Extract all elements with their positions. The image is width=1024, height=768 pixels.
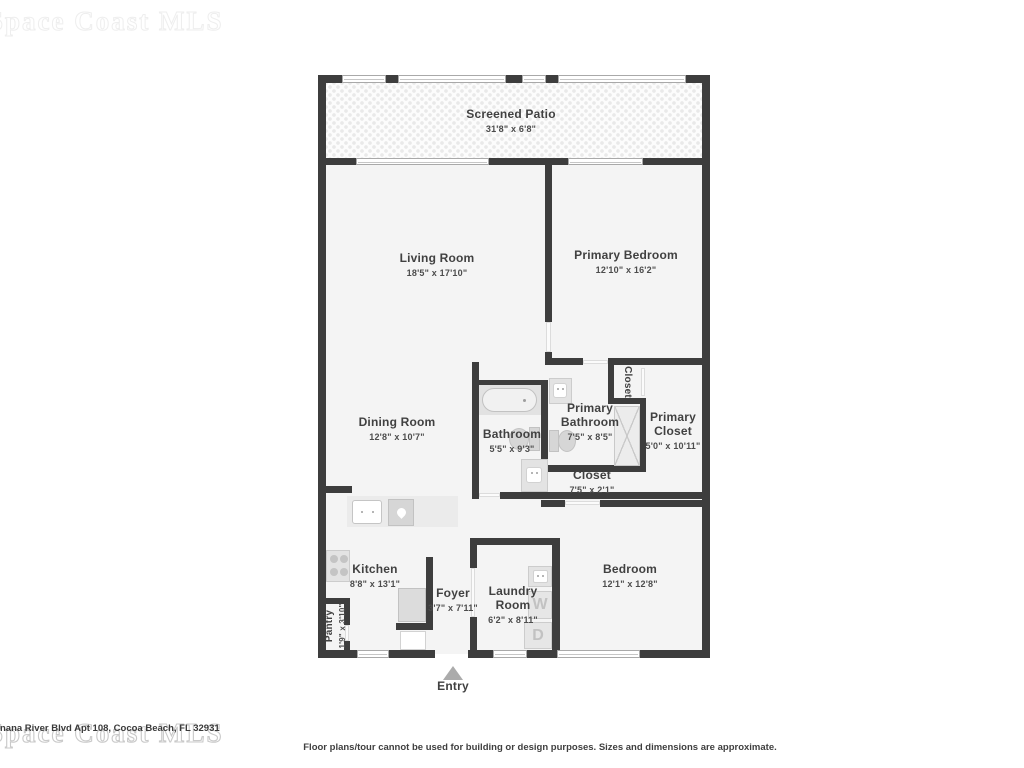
window (398, 75, 506, 83)
door-primary-bath (583, 360, 608, 364)
wall-laundry (470, 538, 560, 545)
wall-bedroom (541, 500, 565, 507)
wall-foyer (396, 623, 433, 630)
faucet-dot (557, 388, 559, 390)
wall-primary-suite (545, 358, 583, 365)
wall-top (546, 75, 558, 83)
door-bedroom (565, 501, 600, 505)
faucet-dot (372, 511, 374, 513)
wall-left (318, 75, 326, 658)
bathtub-drain (523, 399, 526, 402)
window (558, 75, 686, 83)
label-dining-room: Dining Room 12'8" x 10'7" (359, 416, 436, 442)
door-closet (641, 368, 645, 396)
dryer-letter: D (532, 627, 544, 645)
burner (330, 555, 338, 563)
label-bathroom: Bathroom 5'5" x 9'3" (483, 428, 541, 454)
sink-icon (526, 467, 542, 483)
label-primary-bathroom: Primary Bathroom 7'5" x 8'5" (554, 402, 626, 442)
wall-top (506, 75, 522, 83)
door-bathroom (479, 493, 500, 497)
faucet-dot (531, 472, 533, 474)
label-kitchen: Kitchen 8'8" x 13'1" (350, 563, 400, 589)
burner (340, 555, 348, 563)
sliding-door (356, 158, 489, 165)
window (342, 75, 386, 83)
label-pantry: Pantry 1'9" x 3'10" (324, 604, 347, 649)
label-bedroom: Bedroom 12'1" x 12'8" (602, 563, 657, 589)
kitchen-sink-icon (352, 500, 382, 524)
label-closet-small: Closet (621, 366, 633, 398)
label-screened-patio: Screened Patio 31'8" x 6'8" (466, 108, 556, 134)
wall-top (318, 75, 342, 83)
sink-icon (553, 383, 567, 398)
wall-bottom (527, 650, 557, 658)
droplet-icon (395, 506, 408, 519)
window (357, 650, 389, 658)
door-primary-bedroom (546, 322, 551, 352)
label-primary-bedroom: Primary Bedroom 12'10" x 16'2" (574, 249, 678, 275)
faucet-dot (361, 511, 363, 513)
window (493, 650, 527, 658)
wall-top (386, 75, 398, 83)
label-foyer: Foyer 3'7" x 7'11" (428, 587, 478, 613)
label-primary-closet: Primary Closet 5'0" x 10'11" (641, 411, 705, 451)
sliding-door (568, 158, 643, 165)
refrigerator-icon (398, 588, 426, 622)
wall-bottom (318, 650, 357, 658)
patio-wall (643, 158, 702, 165)
wall-right (702, 75, 710, 658)
label-closet: Closet 7'5" x 2'1" (569, 469, 614, 495)
address-text: nana River Blvd Apt 108, Cocoa Beach, FL… (0, 723, 220, 734)
faucet-dot (542, 575, 544, 577)
wall-bedroom (600, 500, 702, 507)
window (557, 650, 640, 658)
window (522, 75, 546, 83)
wall-primary-suite (608, 358, 702, 365)
disclaimer-text: Floor plans/tour cannot be used for buil… (303, 742, 777, 753)
wall-laundry-bedroom (552, 538, 560, 650)
wall-laundry (470, 538, 477, 568)
label-living-room: Living Room 18'5" x 17'10" (400, 252, 475, 278)
sink-icon (533, 570, 548, 583)
coat-closet (400, 631, 426, 650)
burner (330, 568, 338, 576)
wall-kitchen-stub (326, 486, 352, 493)
floorplan: W D Screened Patio 31'8" x 6'8" Living R… (0, 0, 1024, 768)
floorplan-image: Space Coast MLS (0, 0, 1024, 768)
dishwasher-icon (388, 499, 414, 526)
wall-bottom (640, 650, 710, 658)
burner (340, 568, 348, 576)
bathtub-icon (482, 388, 537, 412)
wall-bottom (389, 650, 435, 658)
patio-wall (489, 158, 568, 165)
faucet-dot (536, 472, 538, 474)
wall-bottom (468, 650, 493, 658)
wall-divider (545, 165, 552, 322)
stove-icon (326, 550, 350, 582)
label-entry: Entry (437, 680, 469, 694)
faucet-dot (562, 388, 564, 390)
wall-top (686, 75, 710, 83)
entry-arrow-icon (443, 666, 463, 680)
wall-laundry (470, 617, 477, 650)
label-laundry-room: Laundry Room 6'2" x 8'11" (484, 585, 542, 625)
faucet-dot (537, 575, 539, 577)
patio-wall (326, 158, 356, 165)
